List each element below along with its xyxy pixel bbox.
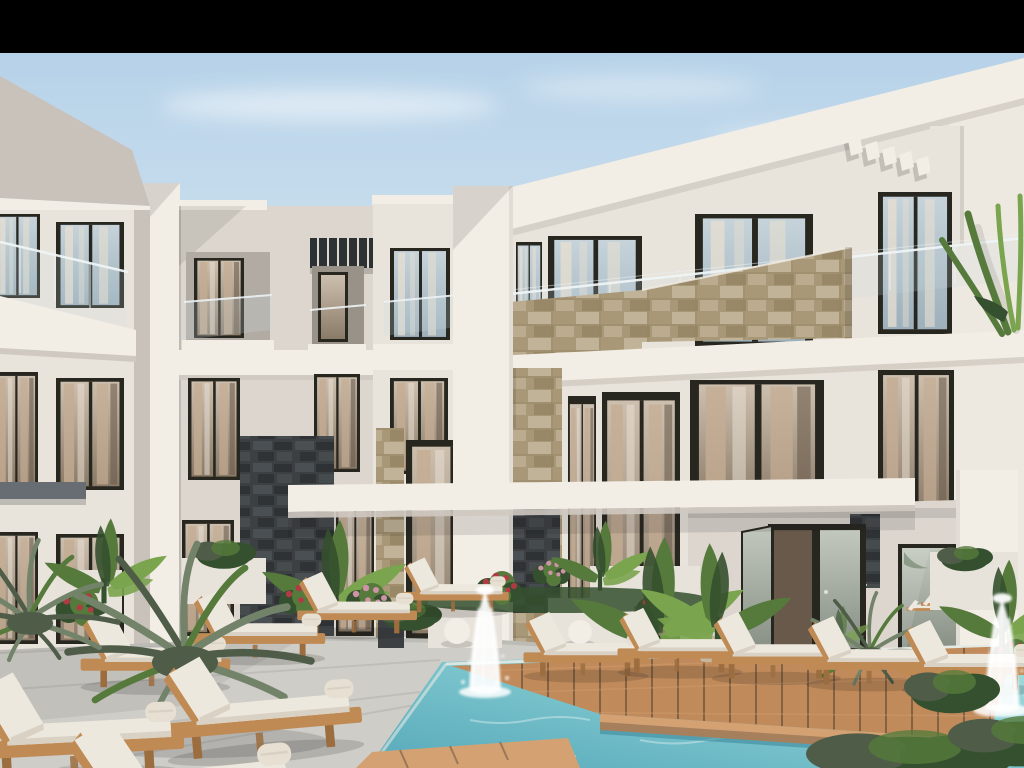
entrance-doors [742, 524, 871, 654]
window-mid-l1 [0, 372, 38, 490]
door-handle [824, 590, 828, 594]
window-mid-l2 [56, 378, 124, 490]
render-canvas: O. [0, 0, 1024, 768]
window-mid-1 [188, 378, 240, 480]
architectural-render: O. [0, 0, 1024, 768]
stone-parapet [510, 290, 642, 360]
recessed-balcony-2 [308, 266, 366, 357]
recessed-balcony-1 [182, 252, 274, 355]
grey-awning [0, 482, 86, 499]
top-black-bar [0, 0, 1024, 53]
entrance-canopy [288, 478, 915, 537]
side-table [568, 620, 592, 644]
side-table [444, 618, 470, 644]
